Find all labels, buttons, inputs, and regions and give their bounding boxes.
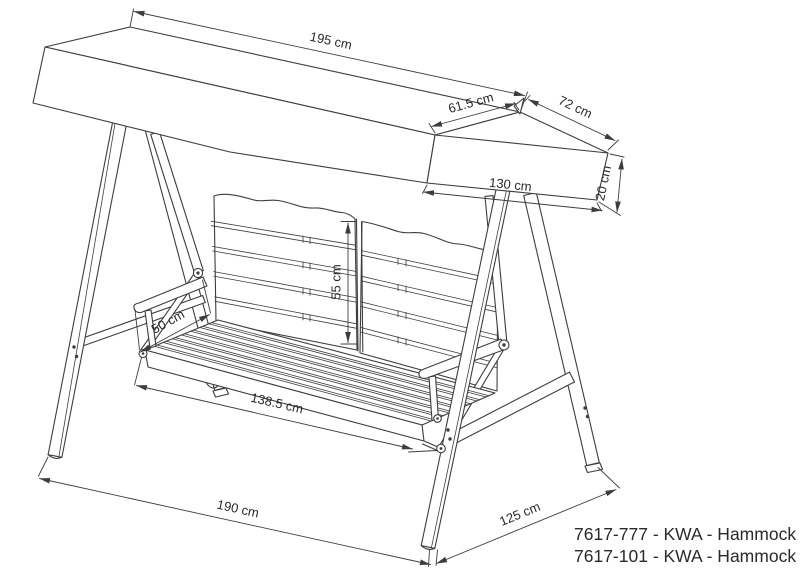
canopy (33, 27, 608, 200)
bolt-dot (583, 406, 586, 409)
dimension-line (40, 479, 431, 565)
armrest-post-bolt-right-center (436, 417, 439, 420)
pivot-bolt-right-center (502, 343, 505, 346)
dim-label-base-depth: 125 cm (497, 499, 542, 529)
bolt-dot (446, 428, 449, 431)
bolt-dot (448, 437, 451, 440)
dim-label-canopy-length: 195 cm (309, 29, 354, 53)
dim-base-width: 190 cm (39, 457, 431, 567)
right-back-leg-body (524, 193, 600, 466)
dim-label-canopy-slope-back: 72 cm (556, 93, 594, 122)
bolt-dot (586, 415, 589, 418)
right-back-leg (524, 193, 603, 473)
product-code-line-1: 7617-777 - KWA - Hammock (574, 524, 796, 544)
bolt-dot (72, 345, 75, 348)
seat-corner-bolt-right-center (440, 447, 443, 450)
product-code-line-2: 7617-101 - KWA - Hammock (574, 546, 796, 566)
pivot-bolt-left-center (196, 271, 199, 274)
dimension-line (617, 159, 622, 212)
bolt-dot (75, 355, 78, 358)
dim-label-base-width: 190 cm (216, 497, 261, 521)
left-front-leg-edge (59, 121, 116, 457)
left-hanger-bar (151, 132, 204, 274)
hammock-swing-drawing: 195 cm 61.5 cm 72 cm 130 cm 20 cm 55 cm (0, 0, 800, 574)
seat-corner-bolt-left-center (142, 352, 145, 355)
dim-label-backrest-height: 55 cm (329, 264, 344, 299)
product-codes: 7617-777 - KWA - Hammock 7617-101 - KWA … (574, 524, 796, 566)
left-front-leg (48, 120, 127, 459)
technical-drawing-page: 195 cm 61.5 cm 72 cm 130 cm 20 cm 55 cm (0, 0, 800, 574)
